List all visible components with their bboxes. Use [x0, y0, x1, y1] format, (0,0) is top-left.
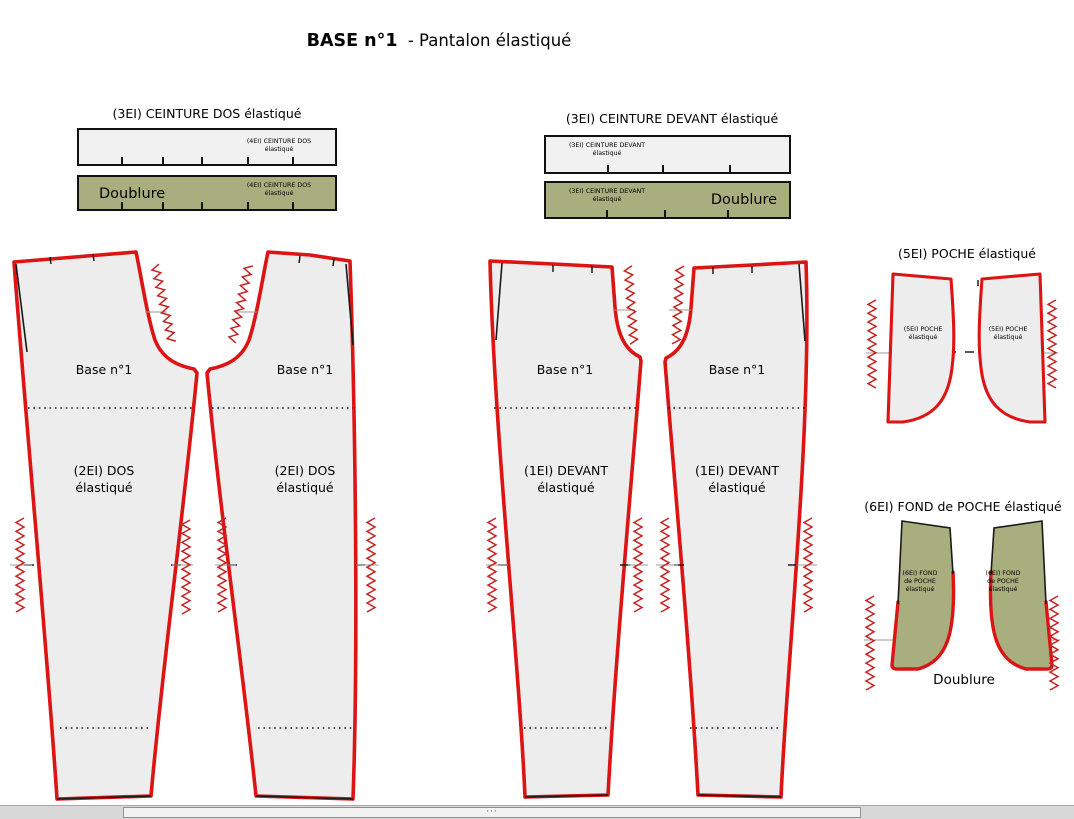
devant-left-base-label: Base n°1 — [537, 361, 594, 378]
ceinture-devant-lining-label: (3EI) CEINTURE DEVANT élastiqué — [569, 188, 645, 204]
dos-right-piece-label: (2EI) DOS élastiqué — [275, 462, 336, 496]
piece-devant-left-outline — [490, 261, 641, 797]
horizontal-scrollbar-track[interactable]: ··· — [0, 805, 1074, 819]
ceinture-dos-doublure-label: Doublure — [99, 186, 165, 202]
piece-poche-right-outline — [979, 274, 1045, 422]
heading-ceinture-devant: (3EI) CEINTURE DEVANT élastiqué — [566, 111, 778, 126]
dos-right-base-label: Base n°1 — [277, 361, 334, 378]
ceinture-dos-main-label: (4EI) CEINTURE DOS élastiqué — [247, 138, 311, 154]
ceinture-dos-lining-label: (4EI) CEINTURE DOS élastiqué — [247, 182, 311, 198]
ceinture-devant-doublure-label: Doublure — [711, 192, 777, 208]
piece-dos-left-outline — [14, 252, 197, 799]
devant-right-piece-label: (1EI) DEVANT élastiqué — [695, 462, 779, 496]
hem-lines — [57, 795, 781, 799]
dos-left-piece-label: (2EI) DOS élastiqué — [74, 462, 135, 496]
heading-poche: (5EI) POCHE élastiqué — [898, 246, 1036, 261]
piece-poche-left-outline — [888, 274, 954, 422]
heading-fond-poche: (6EI) FOND de POCHE élastiqué — [864, 499, 1061, 514]
dos-left-base-label: Base n°1 — [76, 361, 133, 378]
ceinture-devant-main-label: (3EI) CEINTURE DEVANT élastiqué — [569, 142, 645, 158]
pattern-canvas — [0, 0, 1074, 819]
fond-poche-right-label: (6EI) FOND de POCHE élastiqué — [986, 570, 1021, 594]
heading-ceinture-dos: (3EI) CEINTURE DOS élastiqué — [113, 106, 302, 121]
piece-dos-right-outline — [207, 252, 356, 799]
piece-devant-right-outline — [665, 262, 807, 797]
devant-right-base-label: Base n°1 — [709, 361, 766, 378]
poche-left-label: (5EI) POCHE élastiqué — [904, 326, 943, 342]
horizontal-scrollbar-thumb[interactable]: ··· — [123, 807, 861, 818]
fond-poche-left-label: (6EI) FOND de POCHE élastiqué — [903, 570, 938, 594]
fond-poche-doublure-label: Doublure — [933, 672, 995, 688]
scrollbar-grip-dots: ··· — [486, 808, 498, 816]
devant-left-piece-label: (1EI) DEVANT élastiqué — [524, 462, 608, 496]
pattern-sheet: BASE n°1 - Pantalon élastiqué — [0, 0, 1074, 819]
poche-right-label: (5EI) POCHE élastiqué — [989, 326, 1028, 342]
